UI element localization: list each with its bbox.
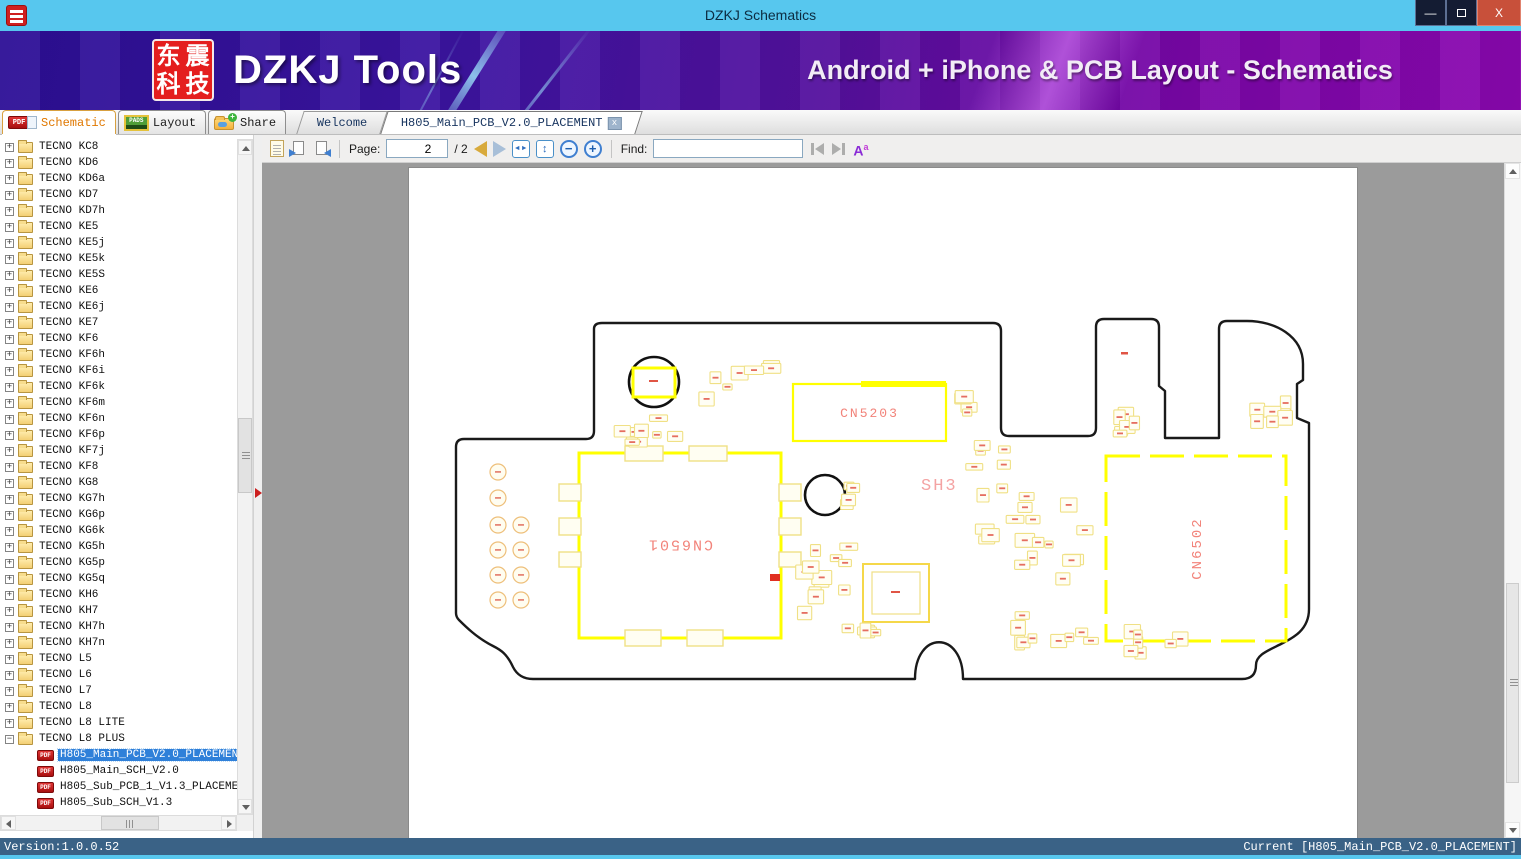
tree-folder-row[interactable]: +TECNO KG5p	[0, 555, 237, 571]
brand-title: DZKJ Tools	[233, 48, 462, 93]
status-bar: Version:1.0.0.52 Current [H805_Main_PCB_…	[0, 838, 1521, 855]
expander-icon[interactable]: +	[5, 431, 14, 440]
folder-icon	[18, 590, 33, 601]
folder-icon	[18, 190, 33, 201]
zoom-in-button[interactable]: +	[584, 140, 602, 158]
tree-folder-row[interactable]: +TECNO KD7	[0, 187, 237, 203]
tree-folder-row[interactable]: +TECNO KF6i	[0, 363, 237, 379]
document-tabs: Welcome H805_Main_PCB_V2.0_PLACEMENT x	[300, 109, 639, 134]
fit-width-button[interactable]: ◄►	[512, 140, 530, 158]
folder-label: TECNO L8 PLUS	[37, 733, 127, 745]
tree-folder-row[interactable]: +TECNO KE7	[0, 315, 237, 331]
toolbar-separator	[339, 140, 340, 158]
component-label: CN6501	[647, 535, 713, 552]
expander-icon[interactable]: +	[5, 319, 14, 328]
scroll-left-button[interactable]	[1, 816, 16, 830]
expander-icon[interactable]: +	[5, 415, 14, 424]
folder-icon	[18, 286, 33, 297]
scrollbar-thumb[interactable]	[1506, 583, 1519, 783]
scroll-down-button[interactable]	[1505, 822, 1520, 838]
doc-tab-welcome[interactable]: Welcome	[296, 111, 388, 134]
component-CN6502: CN6502	[1106, 456, 1286, 641]
tree-folder-row[interactable]: +TECNO KH6	[0, 587, 237, 603]
silkscreen-cluster	[1113, 407, 1139, 437]
tree-folder-row[interactable]: +TECNO KF6p	[0, 427, 237, 443]
folder-label: TECNO KE7	[37, 317, 100, 329]
tree-folder-row[interactable]: +TECNO L8 LITE	[0, 715, 237, 731]
component-CN6501: CN6501	[579, 453, 781, 638]
expander-icon[interactable]: +	[5, 255, 14, 264]
logo-char: 技	[186, 70, 210, 98]
silkscreen-cluster	[966, 441, 1093, 585]
silkscreen-cluster	[1011, 612, 1099, 650]
window-frame-strip	[0, 855, 1521, 859]
folder-icon	[18, 446, 33, 457]
expander-icon[interactable]: +	[5, 495, 14, 504]
toolbar-separator	[611, 140, 612, 158]
folder-label: TECNO KF7j	[37, 445, 107, 457]
folder-icon	[18, 318, 33, 329]
tab-label: Schematic	[41, 116, 106, 130]
tree-folder-row[interactable]: +TECNO KC8	[0, 139, 237, 155]
viewer-vertical-scrollbar[interactable]	[1504, 163, 1521, 838]
close-button[interactable]: X	[1477, 0, 1521, 26]
current-document-text: Current [H805_Main_PCB_V2.0_PLACEMENT]	[1243, 840, 1517, 854]
expander-icon[interactable]: +	[5, 719, 14, 728]
folder-label: TECNO KE5j	[37, 237, 107, 249]
silk-marker	[1121, 352, 1128, 355]
tree-file-row[interactable]: PDFH805_Main_PCB_V2.0_PLACEMENT	[0, 747, 237, 763]
tab-bar: PDF Schematic PADS Layout + Share Welcom…	[0, 110, 1521, 135]
scroll-up-button[interactable]	[238, 140, 252, 155]
tree-folder-row[interactable]: +TECNO KF7j	[0, 443, 237, 459]
expander-icon[interactable]: +	[5, 559, 14, 568]
folder-label: TECNO KG8	[37, 477, 100, 489]
tab-layout[interactable]: PADS Layout	[118, 110, 206, 134]
board-outline	[456, 319, 1309, 679]
folder-label: TECNO KF6m	[37, 397, 107, 409]
folder-icon	[18, 670, 33, 681]
folder-label: TECNO KG6k	[37, 525, 107, 537]
mounting-hole	[805, 475, 845, 515]
file-label: H805_Sub_PCB_1_V1.3_PLACEMENT	[58, 781, 237, 793]
maximize-button[interactable]	[1446, 0, 1477, 26]
tab-label: Layout	[153, 116, 196, 130]
expander-icon[interactable]: −	[5, 735, 14, 744]
folder-icon	[18, 622, 33, 633]
scroll-down-button[interactable]	[238, 799, 252, 814]
folder-icon	[18, 366, 33, 377]
expander-icon[interactable]: +	[5, 447, 14, 456]
folder-label: TECNO KG7h	[37, 493, 107, 505]
folder-label: TECNO KF6	[37, 333, 100, 345]
viewer-toolbar: Page: / 2 ◄► ↕ − + Find: Aa	[262, 135, 1521, 163]
match-case-icon[interactable]: Aa	[853, 140, 868, 158]
tree-folder-row[interactable]: +TECNO KE5	[0, 219, 237, 235]
window-controls: — X	[1415, 0, 1521, 27]
sidebar-horizontal-scrollbar[interactable]	[0, 815, 237, 831]
folder-icon	[18, 142, 33, 153]
component-pad	[559, 518, 581, 535]
find-next-icon[interactable]	[831, 142, 847, 156]
folder-icon	[18, 302, 33, 313]
folder-icon	[18, 206, 33, 217]
prev-document-icon[interactable]	[290, 140, 307, 157]
folder-label: TECNO KG5q	[37, 573, 107, 585]
document-page-icon[interactable]	[270, 140, 284, 157]
scrollbar-corner	[237, 815, 253, 831]
region-label: SH3	[921, 477, 958, 496]
folder-icon	[18, 238, 33, 249]
folder-icon	[18, 398, 33, 409]
tree-folder-row[interactable]: +TECNO KH7n	[0, 635, 237, 651]
document-icon	[27, 116, 37, 129]
folder-label: TECNO KD7h	[37, 205, 107, 217]
silkscreen-cluster	[796, 543, 858, 620]
pdf-icon: PDF	[37, 750, 54, 761]
tree-folder-row[interactable]: +TECNO KF6	[0, 331, 237, 347]
expander-icon[interactable]: +	[5, 623, 14, 632]
silkscreen-cluster	[614, 415, 683, 447]
banner-tagline: Android + iPhone & PCB Layout - Schemati…	[780, 55, 1420, 86]
scrollbar-thumb[interactable]	[101, 816, 159, 830]
folder-icon	[18, 654, 33, 665]
folder-label: TECNO KD6	[37, 157, 100, 169]
folder-icon	[18, 478, 33, 489]
folder-icon	[18, 510, 33, 521]
folder-label: TECNO KE6	[37, 285, 100, 297]
silkscreen-cluster	[699, 361, 781, 406]
thumb-grip-icon	[1510, 679, 1518, 686]
next-document-icon[interactable]	[313, 140, 330, 157]
folder-label: TECNO KG5p	[37, 557, 107, 569]
component-pad	[779, 484, 801, 501]
folder-icon	[18, 542, 33, 553]
tree-folder-row[interactable]: +TECNO KG5q	[0, 571, 237, 587]
folder-label: TECNO L5	[37, 653, 94, 665]
folder-icon	[18, 430, 33, 441]
tree-folder-row[interactable]: +TECNO KE5j	[0, 235, 237, 251]
scrollbar-thumb[interactable]	[238, 418, 252, 493]
folder-icon	[18, 254, 33, 265]
panel-splitter[interactable]	[253, 135, 262, 838]
page-number-input[interactable]	[386, 139, 448, 158]
folder-icon	[18, 558, 33, 569]
silk-part	[633, 368, 675, 397]
version-text: Version:1.0.0.52	[4, 840, 119, 854]
file-label: H805_Main_SCH_V2.0	[58, 765, 181, 777]
application-window: DZKJ Schematics — X 东震科技 DZKJ Tools Andr…	[0, 0, 1521, 859]
tree-folder-row[interactable]: +TECNO KF6h	[0, 347, 237, 363]
pads-icon: PADS	[124, 115, 149, 131]
component-pad	[625, 446, 663, 461]
arrow-up-icon	[242, 146, 250, 151]
folder-tree: +TECNO KC8+TECNO KD6+TECNO KD6a+TECNO KD…	[0, 139, 237, 815]
tab-close-icon[interactable]: x	[608, 117, 622, 130]
tree-folder-row[interactable]: +TECNO KG5h	[0, 539, 237, 555]
share-folder-icon: +	[214, 115, 236, 130]
logo-char: 震	[186, 42, 210, 70]
folder-icon	[18, 494, 33, 505]
expander-icon[interactable]: +	[5, 239, 14, 248]
folder-label: TECNO KD7	[37, 189, 100, 201]
tree-folder-row[interactable]: +TECNO KG8	[0, 475, 237, 491]
file-label: H805_Main_PCB_V2.0_PLACEMENT	[58, 749, 237, 761]
silkscreen-cluster	[955, 391, 977, 417]
file-label: H805_Sub_SCH_V1.3	[58, 797, 174, 809]
folder-icon	[18, 462, 33, 473]
component-CN5203: CN5203	[793, 384, 946, 441]
arrow-down-icon	[1509, 828, 1517, 833]
main-content: +TECNO KC8+TECNO KD6+TECNO KD6a+TECNO KD…	[0, 135, 1521, 838]
expander-icon[interactable]: +	[5, 543, 14, 552]
pcb-placement-drawing: CN5203CN6501CN6502SH3	[409, 168, 1358, 838]
folder-label: TECNO KH7h	[37, 621, 107, 633]
page-label: Page:	[349, 142, 380, 156]
folder-label: TECNO L8 LITE	[37, 717, 127, 729]
arrow-up-icon	[1509, 169, 1517, 174]
expander-icon[interactable]: +	[5, 399, 14, 408]
sidebar-vertical-scrollbar[interactable]	[237, 139, 253, 815]
folder-icon	[18, 606, 33, 617]
pdf-icon: PDF	[37, 766, 54, 777]
expander-icon[interactable]: +	[5, 287, 14, 296]
component-pad	[687, 630, 723, 646]
folder-icon	[18, 382, 33, 393]
tab-schematic[interactable]: PDF Schematic	[2, 110, 116, 134]
expander-icon[interactable]: +	[5, 351, 14, 360]
folder-label: TECNO L7	[37, 685, 94, 697]
close-icon: X	[1495, 6, 1503, 20]
doc-tab-label: H805_Main_PCB_V2.0_PLACEMENT	[401, 116, 603, 130]
tree-folder-row[interactable]: +TECNO KH7	[0, 603, 237, 619]
folder-label: TECNO KF6n	[37, 413, 107, 425]
tree-folder-row[interactable]: +TECNO L5	[0, 651, 237, 667]
tree-folder-row[interactable]: +TECNO KG6k	[0, 523, 237, 539]
expander-icon[interactable]: +	[5, 607, 14, 616]
pdf-page[interactable]: CN5203CN6501CN6502SH3	[408, 167, 1358, 838]
maximize-icon	[1457, 9, 1466, 17]
tree-file-row[interactable]: PDFH805_Main_SCH_V2.0	[0, 763, 237, 779]
folder-icon	[18, 334, 33, 345]
doc-tab-placement[interactable]: H805_Main_PCB_V2.0_PLACEMENT x	[381, 111, 643, 134]
expander-icon[interactable]: +	[5, 175, 14, 184]
folder-label: TECNO KF6k	[37, 381, 107, 393]
folder-icon	[18, 526, 33, 537]
folder-label: TECNO KH7	[37, 605, 100, 617]
expander-icon[interactable]: +	[5, 527, 14, 536]
brand-logo: 东震科技	[152, 39, 214, 101]
tree-folder-row[interactable]: +TECNO KE6	[0, 283, 237, 299]
folder-label: TECNO KC8	[37, 141, 100, 153]
expander-icon[interactable]: +	[5, 383, 14, 392]
expander-icon[interactable]: +	[5, 159, 14, 168]
tree-file-row[interactable]: PDFH805_Sub_PCB_1_V1.3_PLACEMENT	[0, 779, 237, 795]
folder-icon	[18, 638, 33, 649]
folder-label: TECNO KE5	[37, 221, 100, 233]
logo-char: 东	[157, 42, 181, 70]
tree-folder-row[interactable]: +TECNO KF6k	[0, 379, 237, 395]
arrow-left-icon	[6, 820, 11, 828]
folder-label: TECNO KF8	[37, 461, 100, 473]
banner: 东震科技 DZKJ Tools Android + iPhone & PCB L…	[0, 31, 1521, 110]
component-pad	[625, 630, 661, 646]
expander-icon[interactable]: +	[5, 335, 14, 344]
tree-folder-row[interactable]: +TECNO KH7h	[0, 619, 237, 635]
component-pad	[559, 552, 581, 567]
previous-page-button[interactable]	[474, 141, 487, 157]
thumb-grip-icon	[126, 820, 133, 828]
folder-icon	[18, 574, 33, 585]
folder-label: TECNO KF6p	[37, 429, 107, 441]
folder-label: TECNO KE5S	[37, 269, 107, 281]
expander-icon[interactable]: +	[5, 703, 14, 712]
tree-folder-row[interactable]: +TECNO KE5S	[0, 267, 237, 283]
folder-icon	[18, 718, 33, 729]
tree-folder-row[interactable]: +TECNO KE5k	[0, 251, 237, 267]
minimize-button[interactable]: —	[1415, 0, 1446, 26]
component-label: CN5203	[840, 406, 899, 421]
component-pad	[559, 484, 581, 501]
scroll-right-button[interactable]	[221, 816, 236, 830]
tree-folder-row[interactable]: +TECNO KF6m	[0, 395, 237, 411]
tree-folder-row[interactable]: +TECNO KD6a	[0, 171, 237, 187]
fit-page-button[interactable]: ↕	[536, 140, 554, 158]
tree-folder-row[interactable]: +TECNO L6	[0, 667, 237, 683]
component-pad	[689, 446, 727, 461]
expander-icon[interactable]: +	[5, 367, 14, 376]
pdf-icon: PDF	[37, 798, 54, 809]
find-label: Find:	[621, 142, 648, 156]
expander-icon[interactable]: +	[5, 463, 14, 472]
sidebar: +TECNO KC8+TECNO KD6+TECNO KD6a+TECNO KD…	[0, 135, 262, 838]
folder-icon	[18, 350, 33, 361]
expander-icon[interactable]: +	[5, 639, 14, 648]
tree-folder-row[interactable]: +TECNO KG7h	[0, 491, 237, 507]
tree-folder-row[interactable]: −TECNO L8 PLUS	[0, 731, 237, 747]
arrow-down-icon	[242, 805, 250, 810]
page-total: / 2	[454, 142, 467, 156]
silkscreen-cluster	[1250, 396, 1293, 429]
pdf-icon: PDF	[37, 782, 54, 793]
minimize-icon: —	[1425, 6, 1437, 20]
folder-icon	[18, 702, 33, 713]
expander-icon[interactable]: +	[5, 271, 14, 280]
testpad-column	[490, 464, 529, 608]
tree-file-row[interactable]: PDFH805_Sub_SCH_V1.3	[0, 795, 237, 811]
folder-label: TECNO KG6p	[37, 509, 107, 521]
tree-folder-row[interactable]: +TECNO L8	[0, 699, 237, 715]
expander-icon[interactable]: +	[5, 191, 14, 200]
viewer-canvas[interactable]: CN5203CN6501CN6502SH3	[262, 163, 1504, 838]
expander-icon[interactable]: +	[5, 511, 14, 520]
tree-folder-row[interactable]: +TECNO KD7h	[0, 203, 237, 219]
folder-icon	[18, 222, 33, 233]
tab-share[interactable]: + Share	[208, 110, 286, 134]
tree-folder-row[interactable]: +TECNO KE6j	[0, 299, 237, 315]
expander-icon[interactable]: +	[5, 143, 14, 152]
folder-icon	[18, 270, 33, 281]
titlebar: DZKJ Schematics — X	[0, 0, 1521, 31]
folder-icon	[18, 734, 33, 745]
expander-icon[interactable]: +	[5, 223, 14, 232]
folder-label: TECNO L6	[37, 669, 94, 681]
pdf-viewer: Page: / 2 ◄► ↕ − + Find: Aa CN5203CN6501…	[262, 135, 1521, 838]
folder-label: TECNO L8	[37, 701, 94, 713]
tree-folder-row[interactable]: +TECNO L7	[0, 683, 237, 699]
folder-label: TECNO KH6	[37, 589, 100, 601]
find-previous-icon[interactable]	[809, 142, 825, 156]
component-pad	[779, 518, 801, 535]
next-page-button[interactable]	[493, 141, 506, 157]
logo-char: 科	[157, 70, 181, 98]
expander-icon[interactable]: +	[5, 687, 14, 696]
component-label: CN6502	[1190, 517, 1206, 579]
tree-folder-row[interactable]: +TECNO KF8	[0, 459, 237, 475]
folder-icon	[18, 174, 33, 185]
zoom-out-button[interactable]: −	[560, 140, 578, 158]
window-title: DZKJ Schematics	[0, 0, 1521, 31]
folder-icon	[18, 158, 33, 169]
expander-icon[interactable]: +	[5, 303, 14, 312]
folder-icon	[18, 686, 33, 697]
silk-marker	[770, 574, 780, 581]
expander-icon[interactable]: +	[5, 207, 14, 216]
folder-label: TECNO KG5h	[37, 541, 107, 553]
tree-folder-row[interactable]: +TECNO KD6	[0, 155, 237, 171]
folder-label: TECNO KE6j	[37, 301, 107, 313]
collapse-arrow-icon[interactable]	[255, 488, 262, 498]
expander-icon[interactable]: +	[5, 591, 14, 600]
folder-icon	[18, 414, 33, 425]
expander-icon[interactable]: +	[5, 575, 14, 584]
doc-tab-label: Welcome	[317, 116, 367, 130]
tree-folder-row[interactable]: +TECNO KG6p	[0, 507, 237, 523]
expander-icon[interactable]: +	[5, 671, 14, 680]
folder-label: TECNO KD6a	[37, 173, 107, 185]
scroll-up-button[interactable]	[1505, 163, 1520, 179]
folder-label: TECNO KE5k	[37, 253, 107, 265]
thumb-grip-icon	[242, 452, 250, 459]
folder-label: TECNO KH7n	[37, 637, 107, 649]
silkscreen-cluster	[842, 623, 881, 638]
tab-label: Share	[240, 116, 276, 130]
arrow-right-icon	[227, 820, 232, 828]
find-input[interactable]	[653, 139, 803, 158]
tree-folder-row[interactable]: +TECNO KF6n	[0, 411, 237, 427]
folder-label: TECNO KF6i	[37, 365, 107, 377]
expander-icon[interactable]: +	[5, 655, 14, 664]
expander-icon[interactable]: +	[5, 479, 14, 488]
folder-label: TECNO KF6h	[37, 349, 107, 361]
